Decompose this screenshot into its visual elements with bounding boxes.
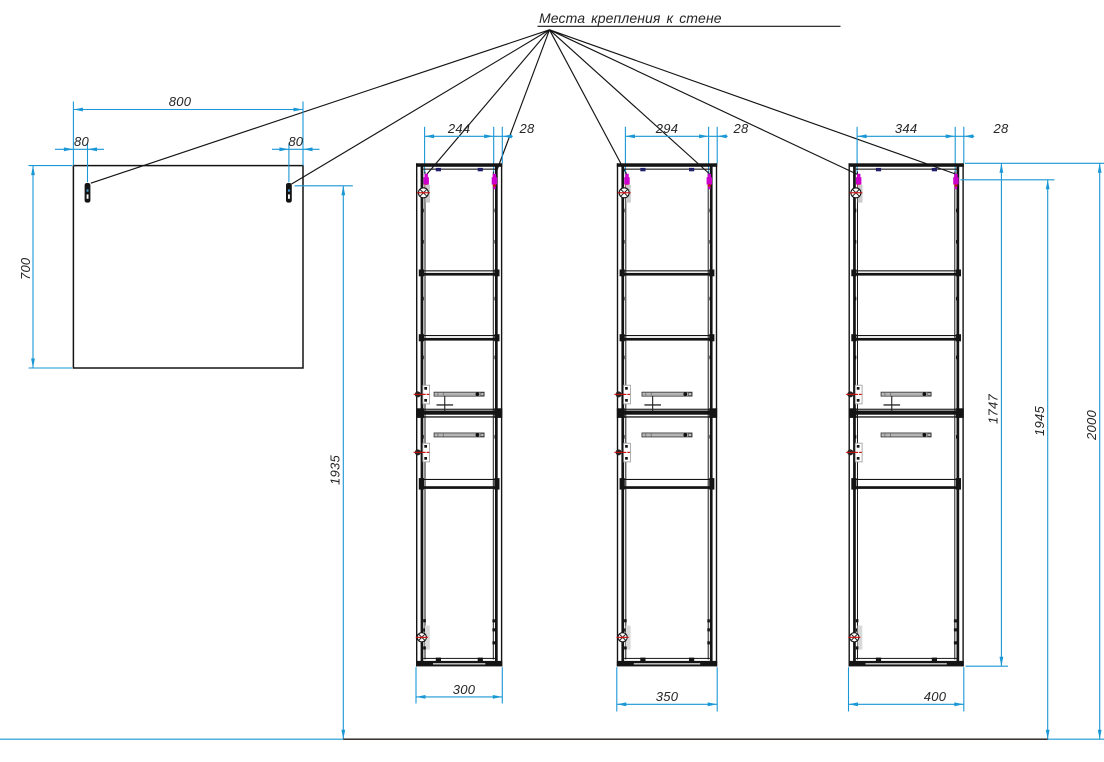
svg-text:1935: 1935	[328, 455, 343, 485]
svg-text:244: 244	[447, 121, 470, 136]
svg-text:344: 344	[895, 121, 917, 136]
svg-text:2000: 2000	[1084, 410, 1099, 441]
svg-text:28: 28	[733, 121, 749, 136]
svg-text:294: 294	[655, 121, 678, 136]
svg-text:1945: 1945	[1032, 406, 1047, 436]
svg-text:80: 80	[288, 134, 303, 149]
svg-text:700: 700	[18, 257, 33, 280]
svg-text:28: 28	[993, 121, 1009, 136]
svg-text:400: 400	[924, 689, 947, 704]
svg-text:80: 80	[74, 134, 89, 149]
svg-text:800: 800	[169, 94, 192, 109]
svg-text:300: 300	[453, 682, 476, 697]
svg-text:Места крепления к стене: Места крепления к стене	[539, 10, 722, 26]
svg-text:1747: 1747	[986, 394, 1001, 424]
svg-text:28: 28	[519, 121, 535, 136]
svg-text:350: 350	[656, 689, 679, 704]
